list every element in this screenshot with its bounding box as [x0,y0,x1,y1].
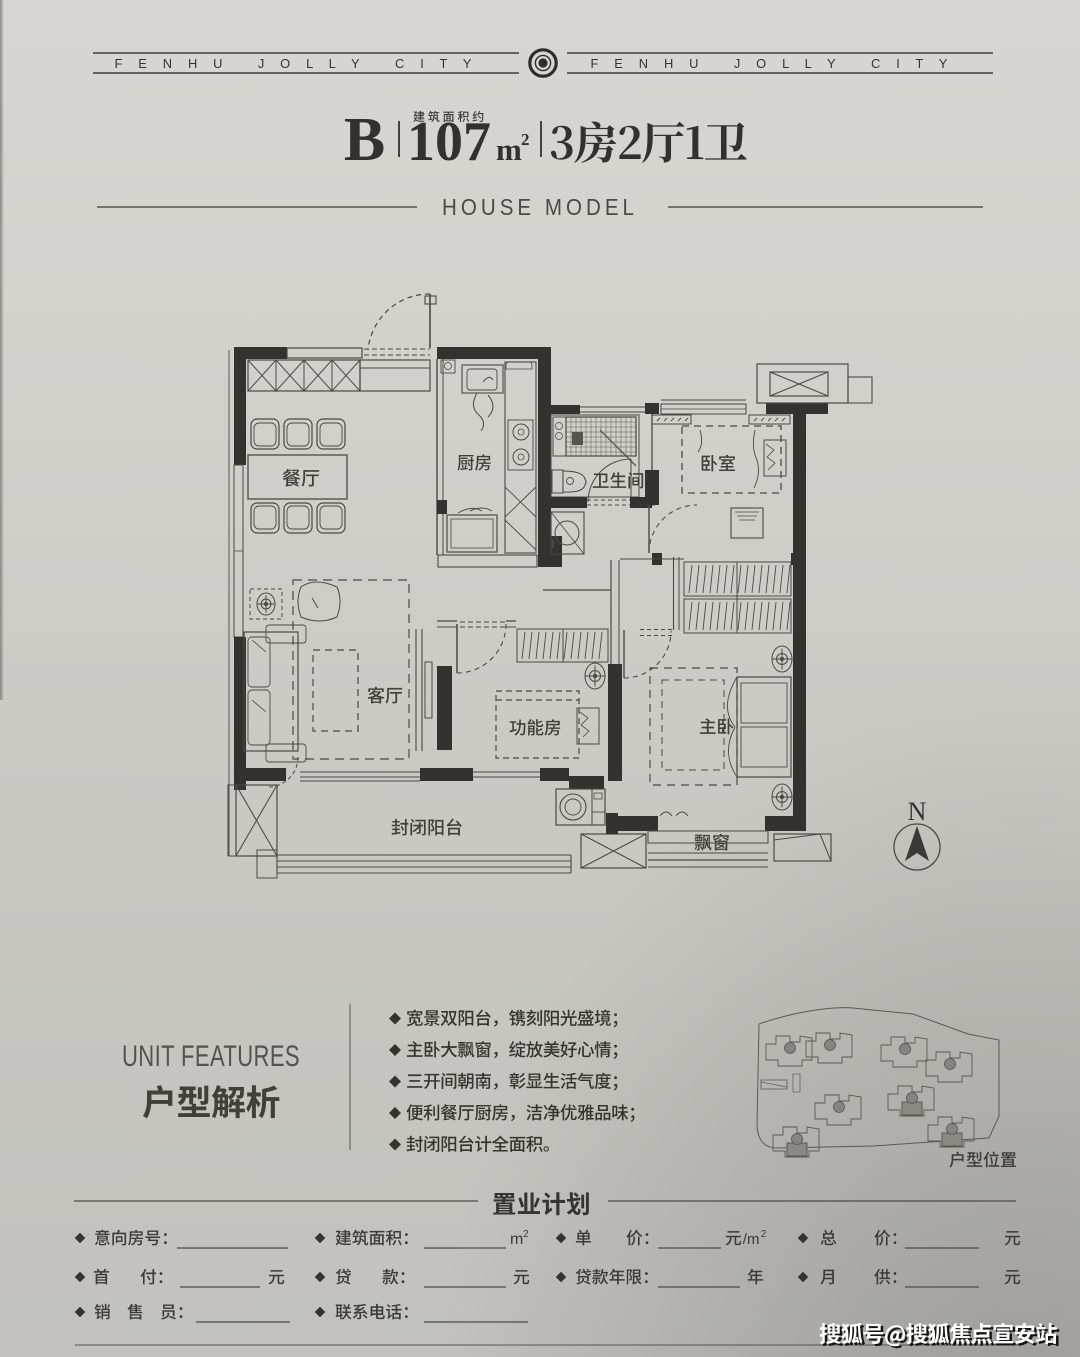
svg-text:/m: /m [743,1231,760,1248]
svg-text:107: 107 [407,111,491,173]
svg-text:2: 2 [523,1229,529,1240]
svg-text:2: 2 [761,1229,767,1240]
svg-text:B: B [344,106,385,174]
svg-text:HOUSE MODEL: HOUSE MODEL [442,194,638,220]
svg-text:F E N H U J O L L Y C I T: F E N H U J O L L Y C I T Y [591,56,954,71]
svg-text:UNIT FEATURES: UNIT FEATURES [122,1040,300,1073]
svg-text:N: N [908,797,927,826]
svg-text:2: 2 [521,130,530,149]
svg-text:m: m [510,1231,523,1248]
svg-text:m: m [496,132,522,167]
svg-text:F E N H U J O L L Y C I T: F E N H U J O L L Y C I T Y [115,56,478,71]
